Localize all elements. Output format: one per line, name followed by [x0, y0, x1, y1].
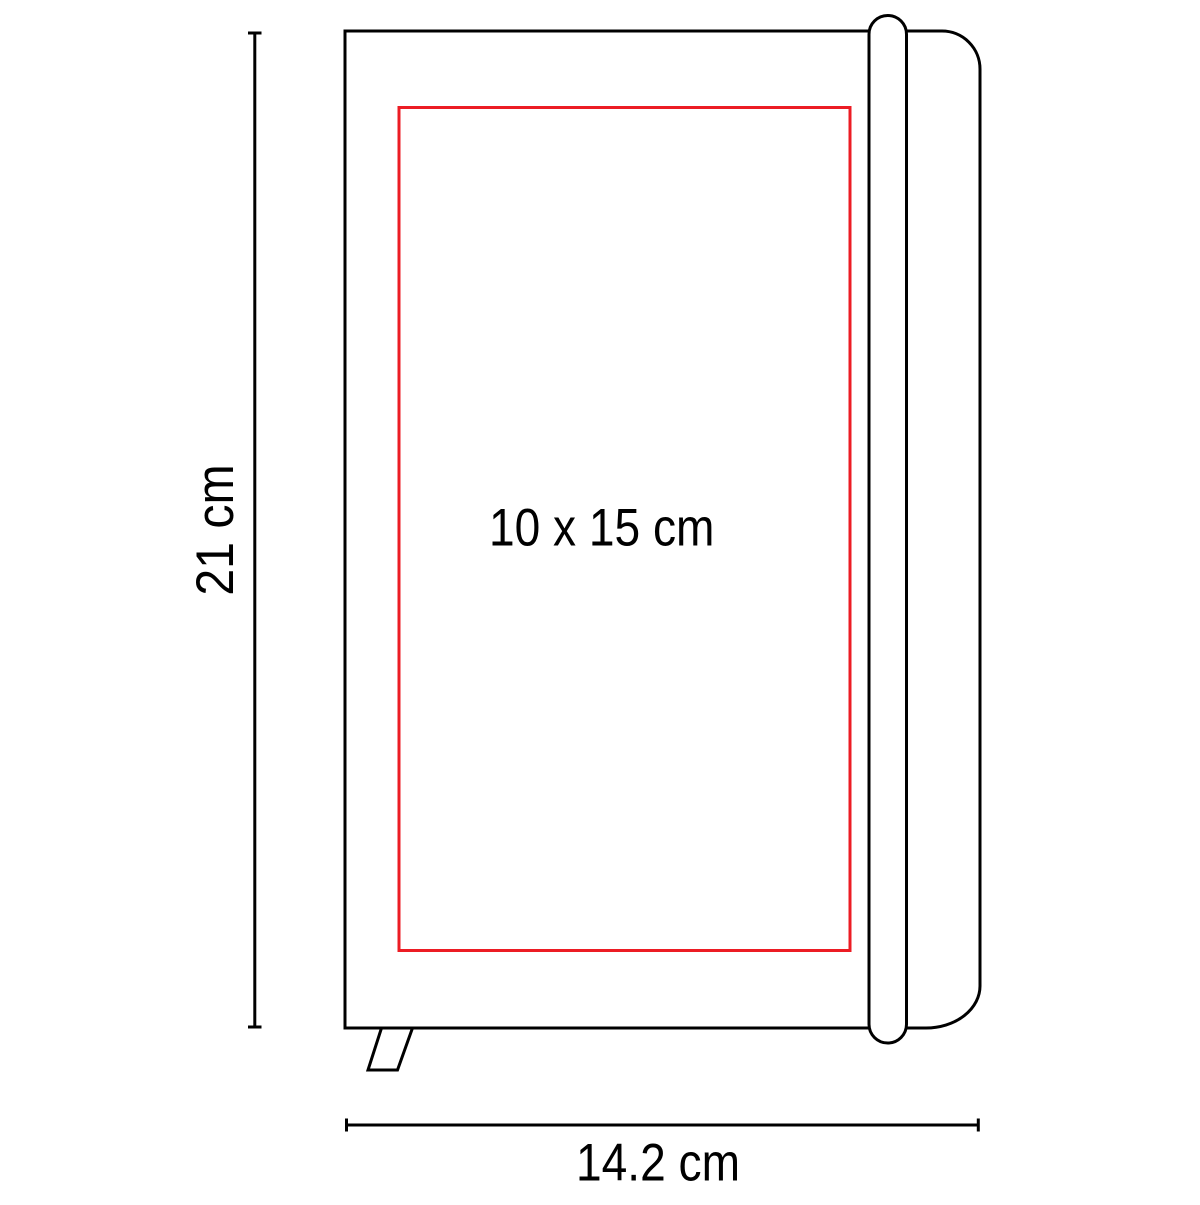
svg-text:10 x 15 cm: 10 x 15 cm [489, 497, 714, 557]
svg-text:21 cm: 21 cm [185, 464, 245, 595]
svg-text:14.2 cm: 14.2 cm [576, 1132, 740, 1192]
